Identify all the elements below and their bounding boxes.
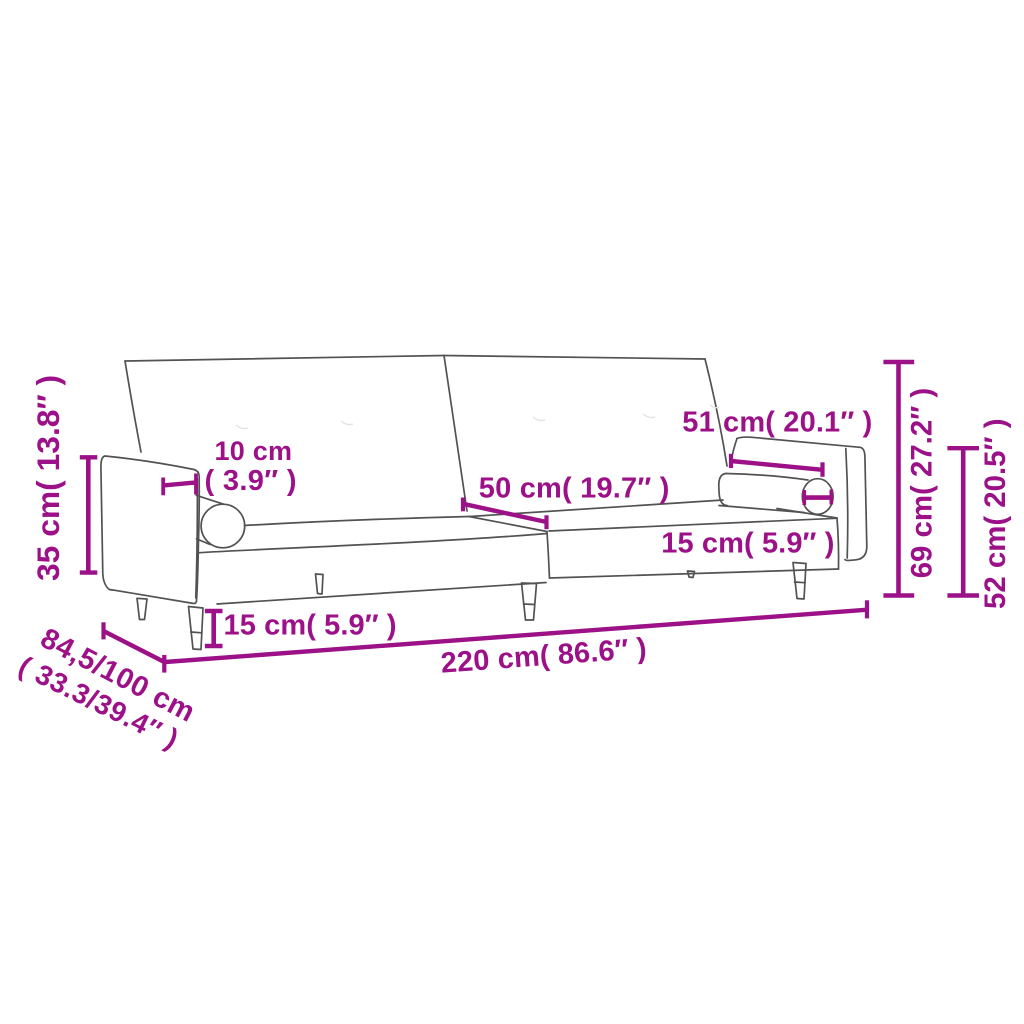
svg-text:10 cm: 10 cm [215,436,293,466]
svg-text:15 cm( 5.9″ ): 15 cm( 5.9″ ) [661,528,834,560]
svg-text:15 cm( 5.9″ ): 15 cm( 5.9″ ) [224,610,397,642]
svg-text:50 cm( 19.7″ ): 50 cm( 19.7″ ) [479,473,670,505]
svg-text:( 3.9″ ): ( 3.9″ ) [205,465,297,497]
svg-text:52 cm( 20.5″ ): 52 cm( 20.5″ ) [979,418,1012,609]
svg-text:35 cm( 13.8″ ): 35 cm( 13.8″ ) [30,375,66,581]
svg-text:51 cm( 20.1″ ): 51 cm( 20.1″ ) [682,407,872,439]
svg-text:69 cm( 27.2″ ): 69 cm( 27.2″ ) [905,388,938,579]
